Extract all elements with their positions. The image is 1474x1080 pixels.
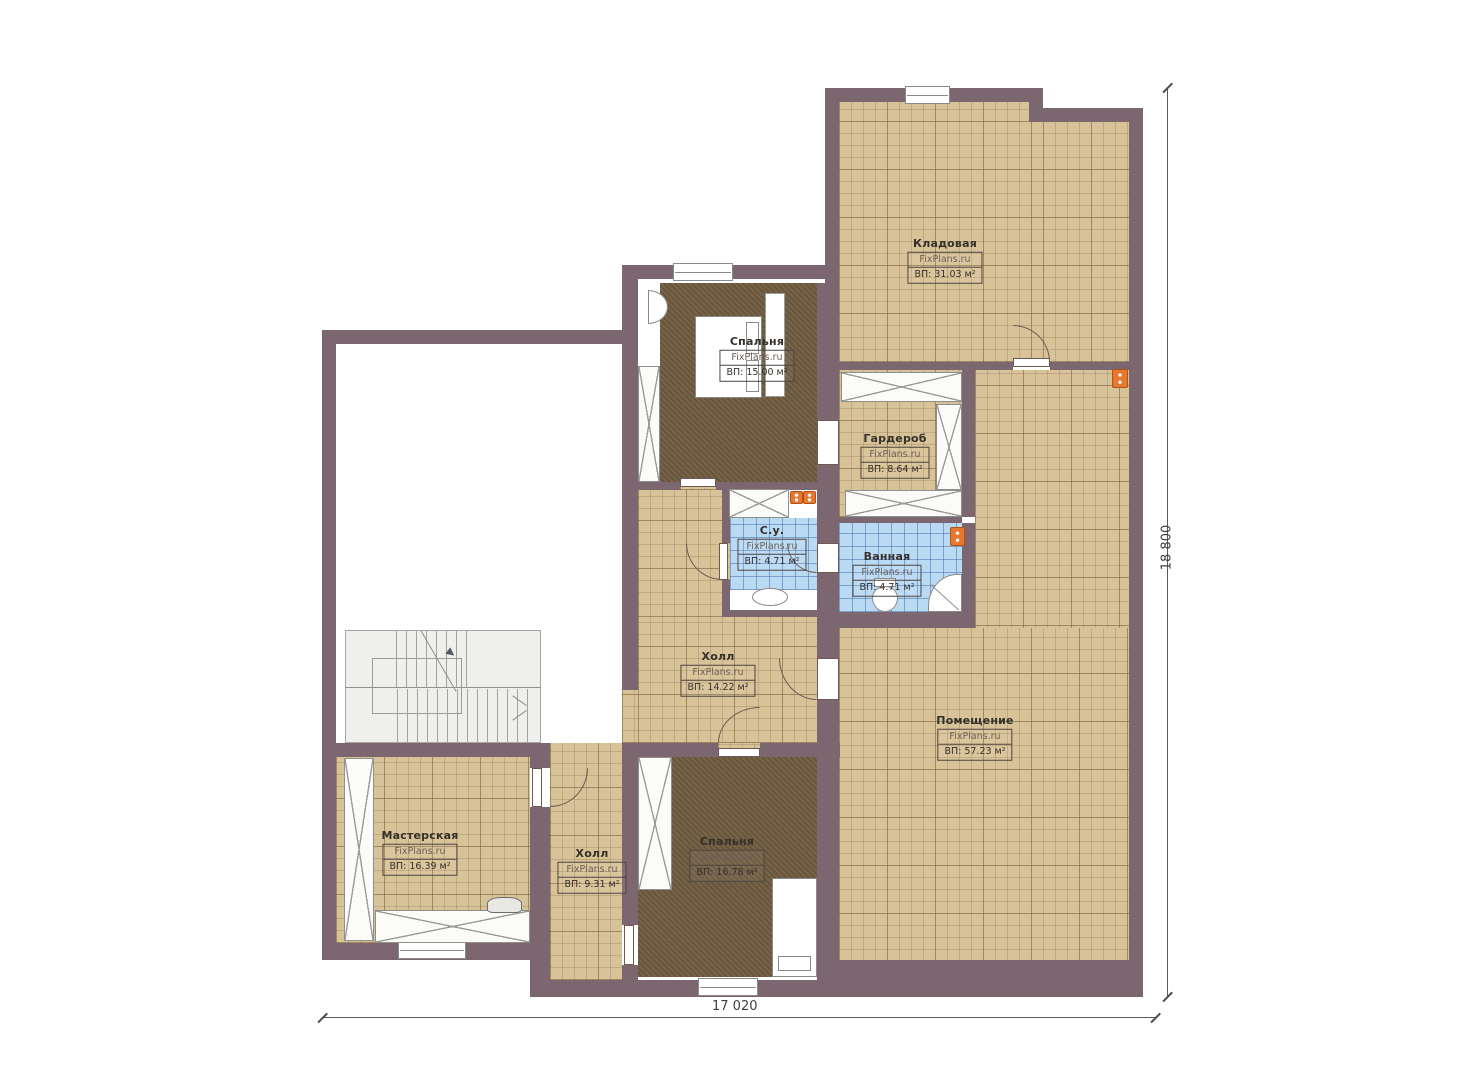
exterior-wall — [825, 88, 839, 283]
closet — [638, 757, 672, 890]
appliance-indicator — [790, 491, 803, 504]
door-leaf — [624, 925, 634, 965]
room-info-box: FixPlans.ru ВП: 16.39 м² — [382, 844, 457, 876]
closet — [845, 490, 962, 517]
watermark: FixPlans.ru — [681, 666, 754, 681]
watermark: FixPlans.ru — [853, 566, 920, 581]
interior-wall — [530, 807, 550, 997]
dimension-width-label: 17 020 — [712, 999, 758, 1014]
floor-kladovaya — [839, 102, 1043, 362]
interior-wall — [817, 700, 839, 980]
floor-plan: Кладовая FixPlans.ru ВП: 31.03 м² Спальн… — [0, 0, 1474, 1080]
watermark: FixPlans.ru — [738, 540, 805, 555]
floor-kladovaya-notch — [1043, 122, 1129, 362]
room-label-holl-top: Холл FixPlans.ru ВП: 14.22 м² — [680, 650, 755, 697]
room-name: Мастерская — [381, 829, 458, 842]
room-label-garderob: Гардероб FixPlans.ru ВП: 8.64 м² — [860, 432, 929, 479]
door-leaf — [817, 658, 839, 700]
door-leaf — [817, 543, 839, 573]
room-label-masterskaya: Мастерская FixPlans.ru ВП: 16.39 м² — [381, 829, 458, 876]
interior-wall — [530, 743, 550, 768]
interior-wall — [839, 362, 1013, 370]
appliance-indicator — [803, 491, 816, 504]
room-info-box: FixPlans.ru ВП: 15.00 м² — [719, 350, 794, 382]
window — [905, 86, 950, 104]
room-label-vannaya: Ванная FixPlans.ru ВП: 4.71 м² — [852, 550, 921, 597]
room-name: Спальня — [689, 835, 764, 848]
room-name: Холл — [680, 650, 755, 663]
interior-wall — [622, 743, 638, 925]
room-name: Холл — [557, 847, 626, 860]
door-leaf — [532, 768, 542, 807]
room-label-pomeshchenie: Помещение FixPlans.ru ВП: 57.23 м² — [936, 714, 1013, 761]
exterior-wall — [1029, 88, 1043, 122]
window — [698, 978, 758, 996]
exterior-wall — [1043, 108, 1143, 122]
room-area: ВП: 31.03 м² — [908, 268, 981, 282]
room-info-box: FixPlans.ru ВП: 57.23 м² — [937, 729, 1012, 761]
exterior-wall — [322, 330, 336, 960]
room-area: ВП: 4.71 м² — [853, 581, 920, 595]
radiator — [1112, 369, 1128, 388]
watermark: FixPlans.ru — [690, 851, 763, 866]
room-name: Спальня — [719, 335, 794, 348]
room-label-spalnya-top: Спальня FixPlans.ru ВП: 15.00 м² — [719, 335, 794, 382]
interior-wall — [622, 265, 638, 690]
floor-corridor-join — [622, 690, 638, 743]
interior-wall — [839, 517, 962, 523]
interior-wall — [716, 482, 722, 490]
room-label-spalnya-bottom: Спальня FixPlans.ru ВП: 16.78 м² — [689, 835, 764, 882]
interior-wall — [839, 612, 975, 628]
room-name: Ванная — [852, 550, 921, 563]
dimension-height-label: 18 800 — [1159, 525, 1174, 571]
closet — [936, 404, 962, 490]
closet — [841, 372, 962, 402]
closet — [729, 489, 789, 518]
watermark: FixPlans.ru — [938, 730, 1011, 745]
interior-wall — [638, 743, 718, 757]
room-name: С.у. — [737, 524, 806, 537]
door-leaf — [817, 420, 839, 465]
room-info-box: FixPlans.ru ВП: 9.31 м² — [557, 862, 626, 894]
radiator — [950, 527, 965, 546]
room-info-box: FixPlans.ru ВП: 4.71 м² — [737, 539, 806, 571]
watermark: FixPlans.ru — [908, 253, 981, 268]
room-area: ВП: 14.22 м² — [681, 681, 754, 695]
room-area: ВП: 8.64 м² — [861, 463, 928, 477]
room-info-box: FixPlans.ru ВП: 16.78 м² — [689, 850, 764, 882]
room-info-box: FixPlans.ru ВП: 14.22 м² — [680, 665, 755, 697]
watermark: FixPlans.ru — [558, 863, 625, 878]
sink — [752, 588, 788, 606]
dimension-line-horizontal — [322, 1017, 1155, 1018]
stairs-walk-line — [372, 658, 462, 714]
exterior-wall — [322, 330, 638, 344]
interior-wall — [817, 573, 839, 658]
room-name: Гардероб — [860, 432, 929, 445]
closet — [638, 366, 660, 482]
room-area: ВП: 9.31 м² — [558, 878, 625, 892]
watermark: FixPlans.ru — [861, 448, 928, 463]
room-name: Кладовая — [907, 237, 982, 250]
room-label-su: С.у. FixPlans.ru ВП: 4.71 м² — [737, 524, 806, 571]
exterior-wall — [825, 960, 1143, 997]
room-label-kladovaya: Кладовая FixPlans.ru ВП: 31.03 м² — [907, 237, 982, 284]
window — [673, 263, 733, 281]
exterior-wall — [530, 980, 840, 997]
exterior-wall — [1129, 108, 1143, 997]
closet — [375, 910, 530, 943]
room-info-box: FixPlans.ru ВП: 4.71 м² — [852, 565, 921, 597]
room-info-box: FixPlans.ru ВП: 31.03 м² — [907, 252, 982, 284]
room-info-box: FixPlans.ru ВП: 8.64 м² — [860, 447, 929, 479]
room-area: ВП: 16.39 м² — [383, 860, 456, 874]
floor-pomeshchenie-main — [839, 628, 1129, 962]
watermark: FixPlans.ru — [720, 351, 793, 366]
bed-pillow — [778, 956, 811, 971]
interior-wall — [962, 370, 975, 517]
interior-wall — [336, 743, 550, 757]
room-name: Помещение — [936, 714, 1013, 727]
interior-wall — [817, 283, 839, 420]
room-area: ВП: 4.71 м² — [738, 555, 805, 569]
interior-wall — [638, 482, 680, 490]
room-area: ВП: 15.00 м² — [720, 366, 793, 380]
closet — [344, 758, 374, 941]
interior-wall — [817, 465, 839, 543]
watermark: FixPlans.ru — [383, 845, 456, 860]
workbench-fixture — [487, 897, 522, 913]
window — [398, 941, 466, 959]
room-label-holl-bottom: Холл FixPlans.ru ВП: 9.31 м² — [557, 847, 626, 894]
door-leaf — [718, 748, 760, 757]
room-area: ВП: 16.78 м² — [690, 866, 763, 880]
room-area: ВП: 57.23 м² — [938, 745, 1011, 759]
